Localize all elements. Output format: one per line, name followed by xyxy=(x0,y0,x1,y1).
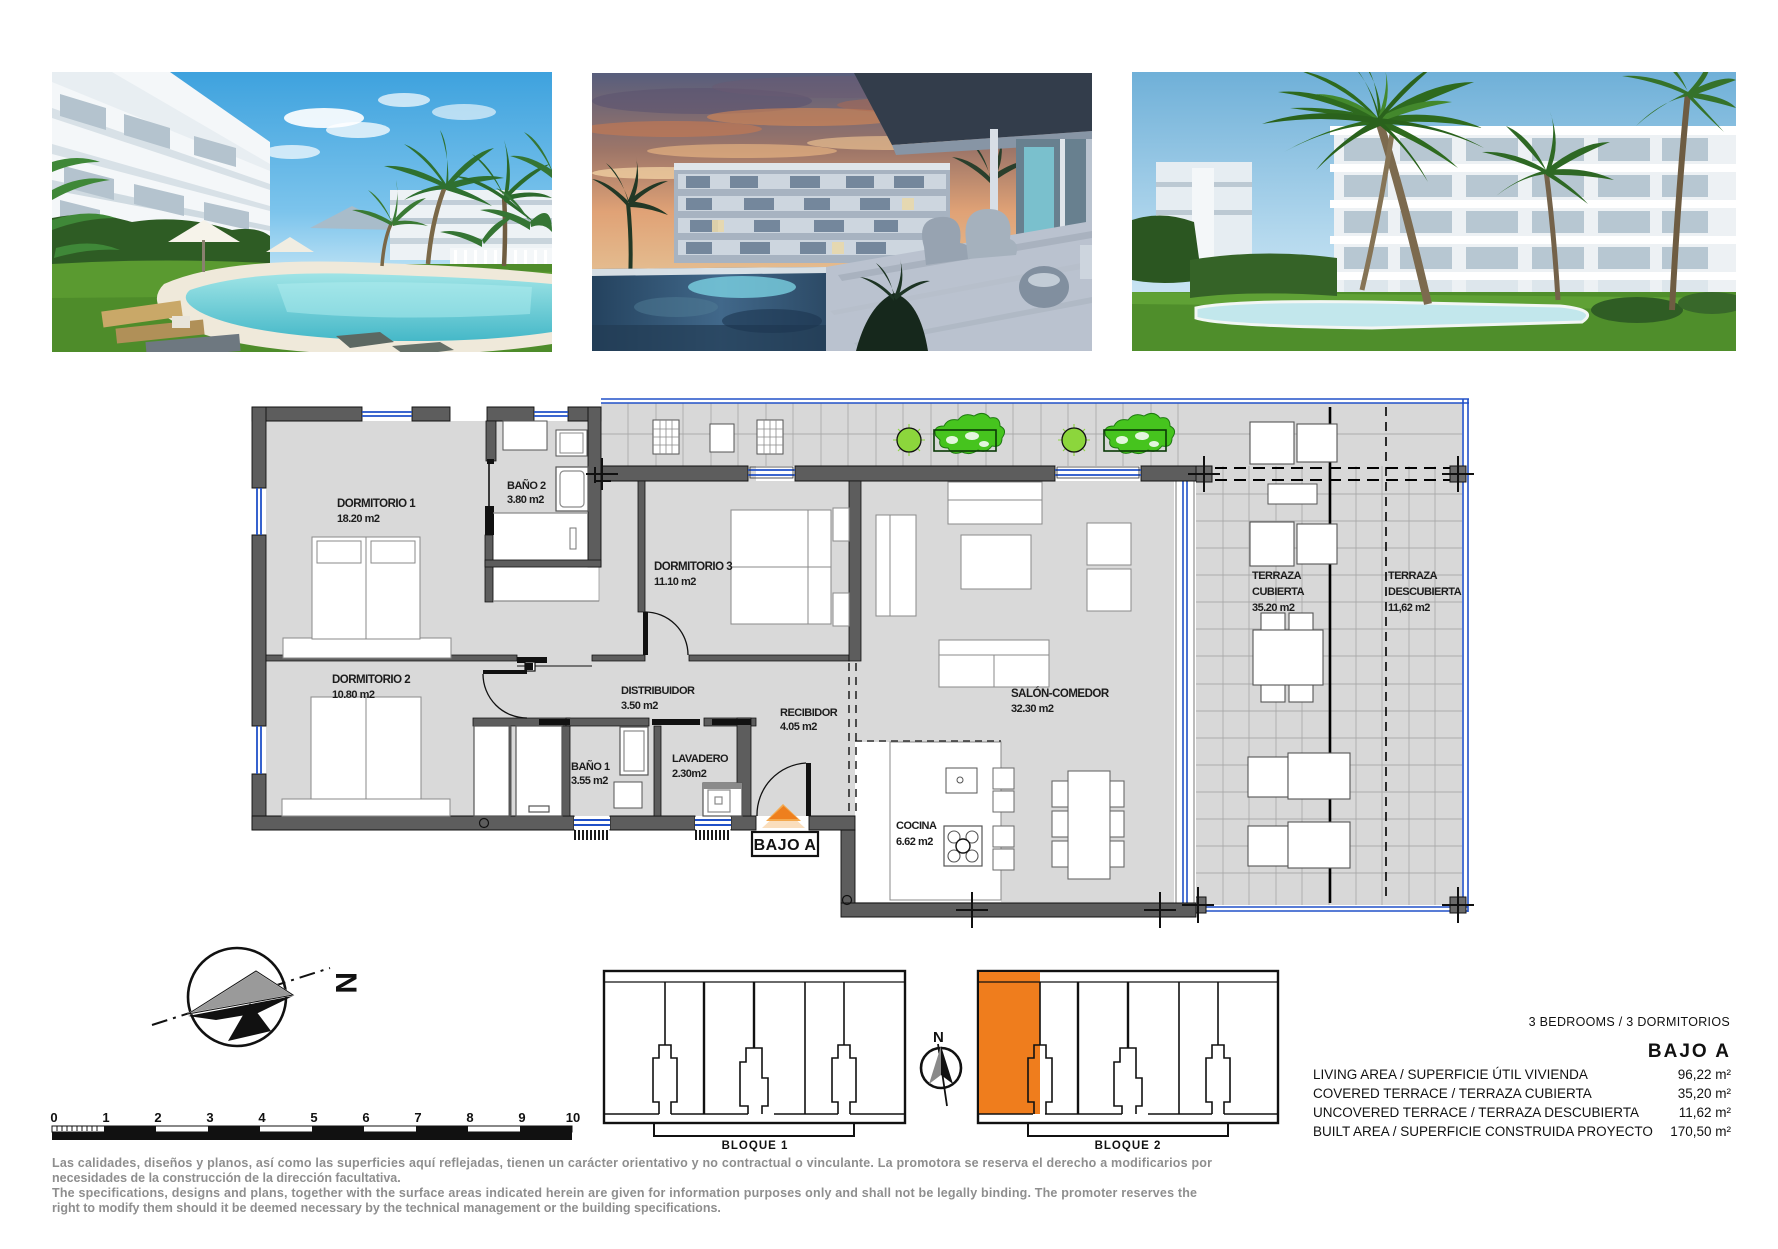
svg-text:32.30 m2: 32.30 m2 xyxy=(1011,703,1054,715)
svg-text:BLOQUE 2: BLOQUE 2 xyxy=(1095,1140,1162,1152)
svg-text:3.80 m2: 3.80 m2 xyxy=(507,494,544,506)
svg-text:96,22 m²: 96,22 m² xyxy=(1678,1067,1732,1082)
svg-text:BUILT AREA / SUPERFICIE CONSTR: BUILT AREA / SUPERFICIE CONSTRUIDA PROYE… xyxy=(1313,1124,1653,1139)
svg-text:N: N xyxy=(329,972,362,994)
svg-text:TERRAZA: TERRAZA xyxy=(1252,570,1302,582)
svg-text:necesidades de la construcción: necesidades de la construcción de la dir… xyxy=(52,1171,401,1185)
svg-text:BAJO A: BAJO A xyxy=(754,837,817,854)
svg-text:8: 8 xyxy=(466,1110,473,1125)
svg-text:DORMITORIO 1: DORMITORIO 1 xyxy=(337,498,416,510)
svg-text:LIVING AREA / SUPERFICIE ÚTIL: LIVING AREA / SUPERFICIE ÚTIL VIVIENDA xyxy=(1313,1067,1588,1082)
svg-text:11.10 m2: 11.10 m2 xyxy=(654,576,696,588)
svg-text:BAÑO 1: BAÑO 1 xyxy=(571,760,610,773)
svg-text:18.20 m2: 18.20 m2 xyxy=(337,513,380,525)
svg-text:4.05 m2: 4.05 m2 xyxy=(780,721,817,733)
svg-text:11,62 m²: 11,62 m² xyxy=(1679,1105,1732,1120)
svg-text:SALÓN-COMEDOR: SALÓN-COMEDOR xyxy=(1011,687,1110,700)
svg-text:6.62 m2: 6.62 m2 xyxy=(896,836,933,848)
svg-text:4: 4 xyxy=(258,1110,266,1125)
svg-text:DISTRIBUIDOR: DISTRIBUIDOR xyxy=(621,685,695,697)
svg-text:10.80 m2: 10.80 m2 xyxy=(332,689,375,701)
svg-text:170,50 m²: 170,50 m² xyxy=(1670,1124,1731,1139)
svg-text:RECIBIDOR: RECIBIDOR xyxy=(780,707,838,719)
svg-text:35,20 m²: 35,20 m² xyxy=(1678,1086,1732,1101)
svg-text:The specifications, designs an: The specifications, designs and plans, t… xyxy=(52,1186,1197,1200)
svg-text:5: 5 xyxy=(310,1110,317,1125)
svg-text:right to modify them should it: right to modify them should it be deemed… xyxy=(52,1201,721,1215)
svg-text:BAJO A: BAJO A xyxy=(1648,1041,1731,1062)
svg-text:DORMITORIO 3: DORMITORIO 3 xyxy=(654,561,732,573)
svg-text:BAÑO 2: BAÑO 2 xyxy=(507,479,546,492)
svg-text:UNCOVERED TERRACE / TERRAZA DE: UNCOVERED TERRACE / TERRAZA DESCUBIERTA xyxy=(1313,1105,1639,1120)
svg-text:2.30m2: 2.30m2 xyxy=(672,768,707,780)
svg-text:10: 10 xyxy=(566,1110,580,1125)
svg-text:0: 0 xyxy=(50,1110,57,1125)
svg-text:3 BEDROOMS / 3 DORMITORIOS: 3 BEDROOMS / 3 DORMITORIOS xyxy=(1529,1015,1730,1029)
svg-text:9: 9 xyxy=(518,1110,525,1125)
svg-text:3.50 m2: 3.50 m2 xyxy=(621,700,658,712)
svg-text:COCINA: COCINA xyxy=(896,820,937,832)
svg-text:BLOQUE 1: BLOQUE 1 xyxy=(722,1140,789,1152)
svg-text:Las calidades, diseños y plano: Las calidades, diseños y planos, así com… xyxy=(52,1156,1212,1170)
svg-text:N: N xyxy=(933,1029,944,1046)
svg-text:35.20 m2: 35.20 m2 xyxy=(1252,602,1295,614)
svg-text:2: 2 xyxy=(154,1110,161,1125)
svg-text:6: 6 xyxy=(362,1110,369,1125)
svg-text:11,62 m2: 11,62 m2 xyxy=(1388,602,1430,614)
svg-text:1: 1 xyxy=(102,1110,109,1125)
svg-text:CUBIERTA: CUBIERTA xyxy=(1252,586,1305,598)
svg-text:LAVADERO: LAVADERO xyxy=(672,753,729,765)
svg-text:COVERED TERRACE / TERRAZA CUBI: COVERED TERRACE / TERRAZA CUBIERTA xyxy=(1313,1086,1592,1101)
svg-text:3.55 m2: 3.55 m2 xyxy=(571,775,608,787)
svg-text:DORMITORIO 2: DORMITORIO 2 xyxy=(332,674,410,686)
svg-text:TERRAZA: TERRAZA xyxy=(1388,570,1438,582)
svg-text:DESCUBIERTA: DESCUBIERTA xyxy=(1388,586,1462,598)
svg-text:3: 3 xyxy=(206,1110,213,1125)
svg-text:7: 7 xyxy=(414,1110,421,1125)
